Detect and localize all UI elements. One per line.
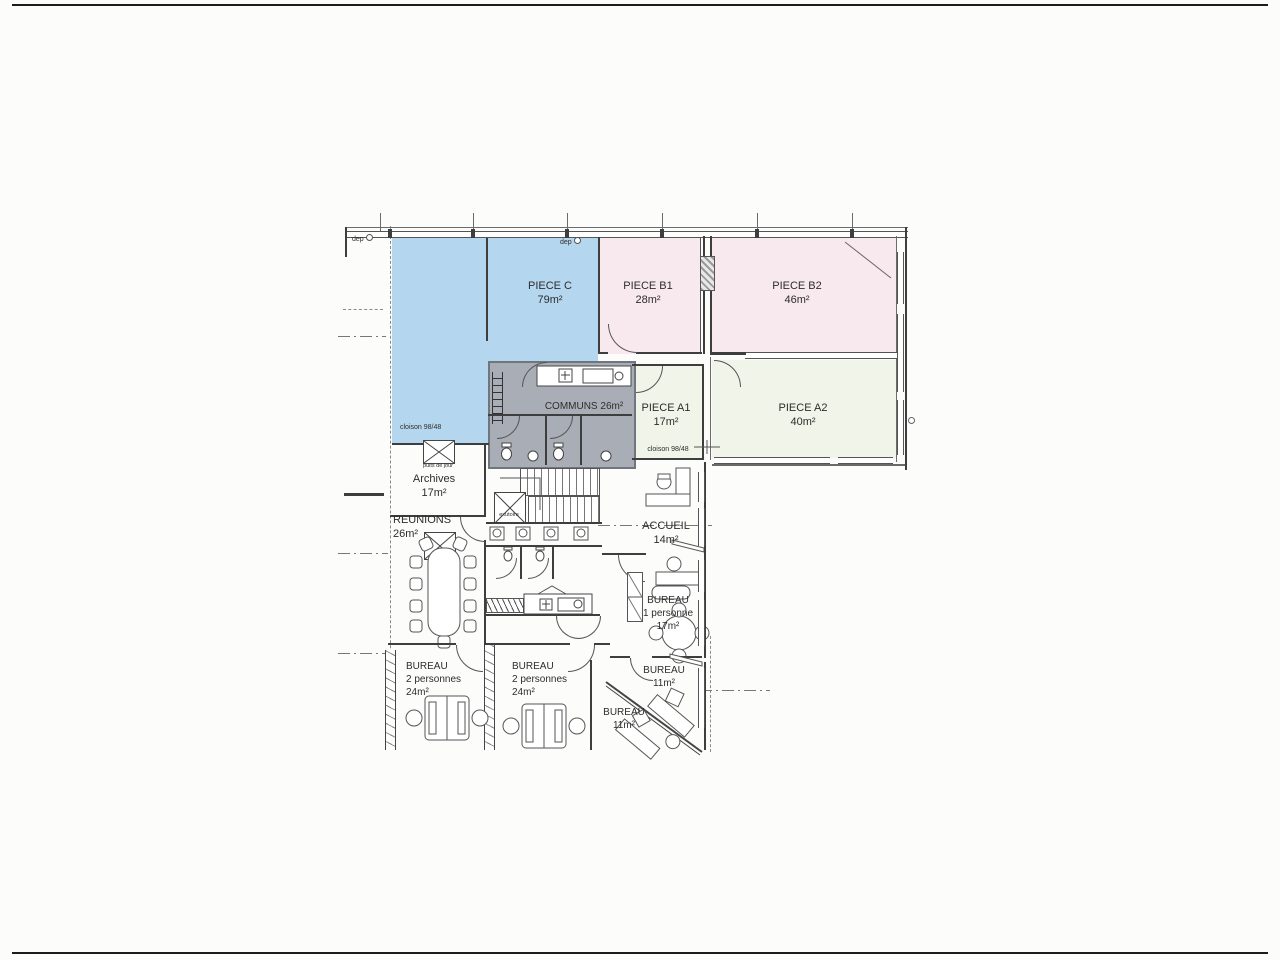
washbasin-icon xyxy=(600,450,612,462)
puits-de-jour-label: puits de jour xyxy=(408,464,468,470)
facade-top-corner xyxy=(345,227,347,257)
facade-a2-bottom-windows xyxy=(714,457,830,464)
core-washbasins xyxy=(486,525,602,545)
communs-kitchenette xyxy=(537,366,632,388)
facade-right-bureau11-window xyxy=(698,668,705,728)
door-arc-hall-2 xyxy=(578,616,601,639)
wall-reunions-right xyxy=(484,540,486,644)
dep-annotation-1: dep xyxy=(352,236,364,244)
facade-a2-bottom-outer xyxy=(712,464,907,466)
dep-marker-1 xyxy=(366,234,373,241)
room-label-bureau-11-lower: BUREAU11m² xyxy=(592,706,656,732)
room-label-bureau-24-left: BUREAU2 personnes24m² xyxy=(406,660,490,699)
room-label-accueil: ACCUEIL14m² xyxy=(630,519,702,548)
double-desk xyxy=(405,692,489,748)
helper-dashdot-left-2 xyxy=(338,553,388,554)
core-wc-divider xyxy=(552,545,554,579)
facade-right-window xyxy=(897,252,904,304)
dep-annotation-2: dep xyxy=(560,239,572,247)
facade-right-window xyxy=(897,400,904,455)
room-label-bureau-11-upper: BUREAU11m² xyxy=(632,664,696,690)
axis-line-right-bottom xyxy=(710,636,711,752)
downspout-marker xyxy=(908,417,915,424)
room-label-reunions: REUNIONS26m² xyxy=(393,513,475,542)
pillar-hatched xyxy=(700,256,715,291)
exutoire-label: exutoire xyxy=(494,513,524,519)
cloison-annotation-a1: cloison 98/48 xyxy=(636,446,700,454)
facade-top-mullion xyxy=(660,229,664,238)
cloison-annotation-c: cloison 98/48 xyxy=(400,424,464,432)
wall-a1-bottom xyxy=(632,458,704,460)
washbasin-icon xyxy=(527,450,539,462)
wall-stub-left xyxy=(344,493,384,496)
scan-border-top xyxy=(12,4,1268,6)
room-label-communs: COMMUNS 26m² xyxy=(530,400,638,413)
room-piece-c-lower xyxy=(392,363,489,445)
facade-a2-corner xyxy=(905,458,907,466)
smoke-vent-box xyxy=(494,492,526,524)
facade-right-lower-window xyxy=(698,472,705,502)
room-label-piece-b2: PIECE B246m² xyxy=(752,279,842,308)
room-label-archives: Archives17m² xyxy=(398,472,470,501)
skylight-box xyxy=(423,440,455,464)
facade-top-mullion xyxy=(388,229,392,238)
toilet-icon xyxy=(534,547,546,562)
facade-top-mullion xyxy=(850,229,854,238)
wall-b1-bottom xyxy=(636,352,702,354)
scanned-floor-plan-page: dep dep puits de jour xyxy=(0,0,1280,960)
room-label-piece-c: PIECE C79m² xyxy=(505,279,595,308)
facade-top-windows xyxy=(345,231,908,238)
facade-top-mullion xyxy=(565,229,569,238)
conference-table xyxy=(400,540,484,646)
wall-corridor-bottom xyxy=(388,643,456,645)
facade-right-window xyxy=(897,314,904,392)
communs-wc-divider xyxy=(545,414,547,465)
room-label-piece-a1: PIECE A117m² xyxy=(628,401,704,430)
facade-top-mullion xyxy=(471,229,475,238)
wall-c-b1 xyxy=(598,237,600,354)
facade-top-outer xyxy=(345,227,908,228)
toilet-icon xyxy=(552,443,566,461)
coat-rack xyxy=(486,598,524,613)
helper-dashdot-right-bottom xyxy=(700,690,770,691)
wall-b1-b2 xyxy=(710,236,712,354)
scan-border-bottom xyxy=(12,952,1268,954)
facade-a2-bottom-windows xyxy=(838,457,893,464)
toilet-icon xyxy=(500,443,514,461)
room-label-bureau-24-mid: BUREAU2 personnes24m² xyxy=(512,660,596,699)
core-wc-divider xyxy=(520,545,522,579)
facade-right-inner xyxy=(896,236,897,462)
wall-b2-a2-windows xyxy=(745,352,897,359)
facade-left-glazed xyxy=(385,650,396,750)
facade-right-outer xyxy=(905,227,907,470)
door-arc-hall-1 xyxy=(556,616,579,639)
facade-top-mullion xyxy=(755,229,759,238)
helper-dash-left-1 xyxy=(343,309,383,310)
wall-corridor-bottom xyxy=(594,643,610,645)
partition-piece-c xyxy=(486,238,488,341)
wall-b1-b2 xyxy=(703,236,705,354)
double-desk xyxy=(502,700,586,756)
toilet-icon xyxy=(502,547,514,562)
wall-b2-a2 xyxy=(710,352,746,355)
facade-right-lower-window xyxy=(698,560,705,592)
room-label-bureau-1p: BUREAU1 personne17m² xyxy=(630,594,706,633)
helper-dashdot-left-3 xyxy=(338,653,388,654)
grid-tick xyxy=(380,213,381,231)
wall-corridor-bottom xyxy=(484,643,570,645)
wall-bureau11-top xyxy=(610,656,630,658)
helper-dashdot-left-1 xyxy=(338,336,386,337)
accueil-desk xyxy=(640,466,700,518)
wall-core-sinks-top xyxy=(486,522,602,524)
communs-wc-divider xyxy=(580,414,582,465)
corner-brace-b2 xyxy=(845,240,895,282)
room-label-piece-b1: PIECE B128m² xyxy=(606,279,690,308)
room-label-piece-a2: PIECE A240m² xyxy=(758,401,848,430)
wall-archives-right xyxy=(484,443,486,517)
dep-marker-2 xyxy=(574,237,581,244)
